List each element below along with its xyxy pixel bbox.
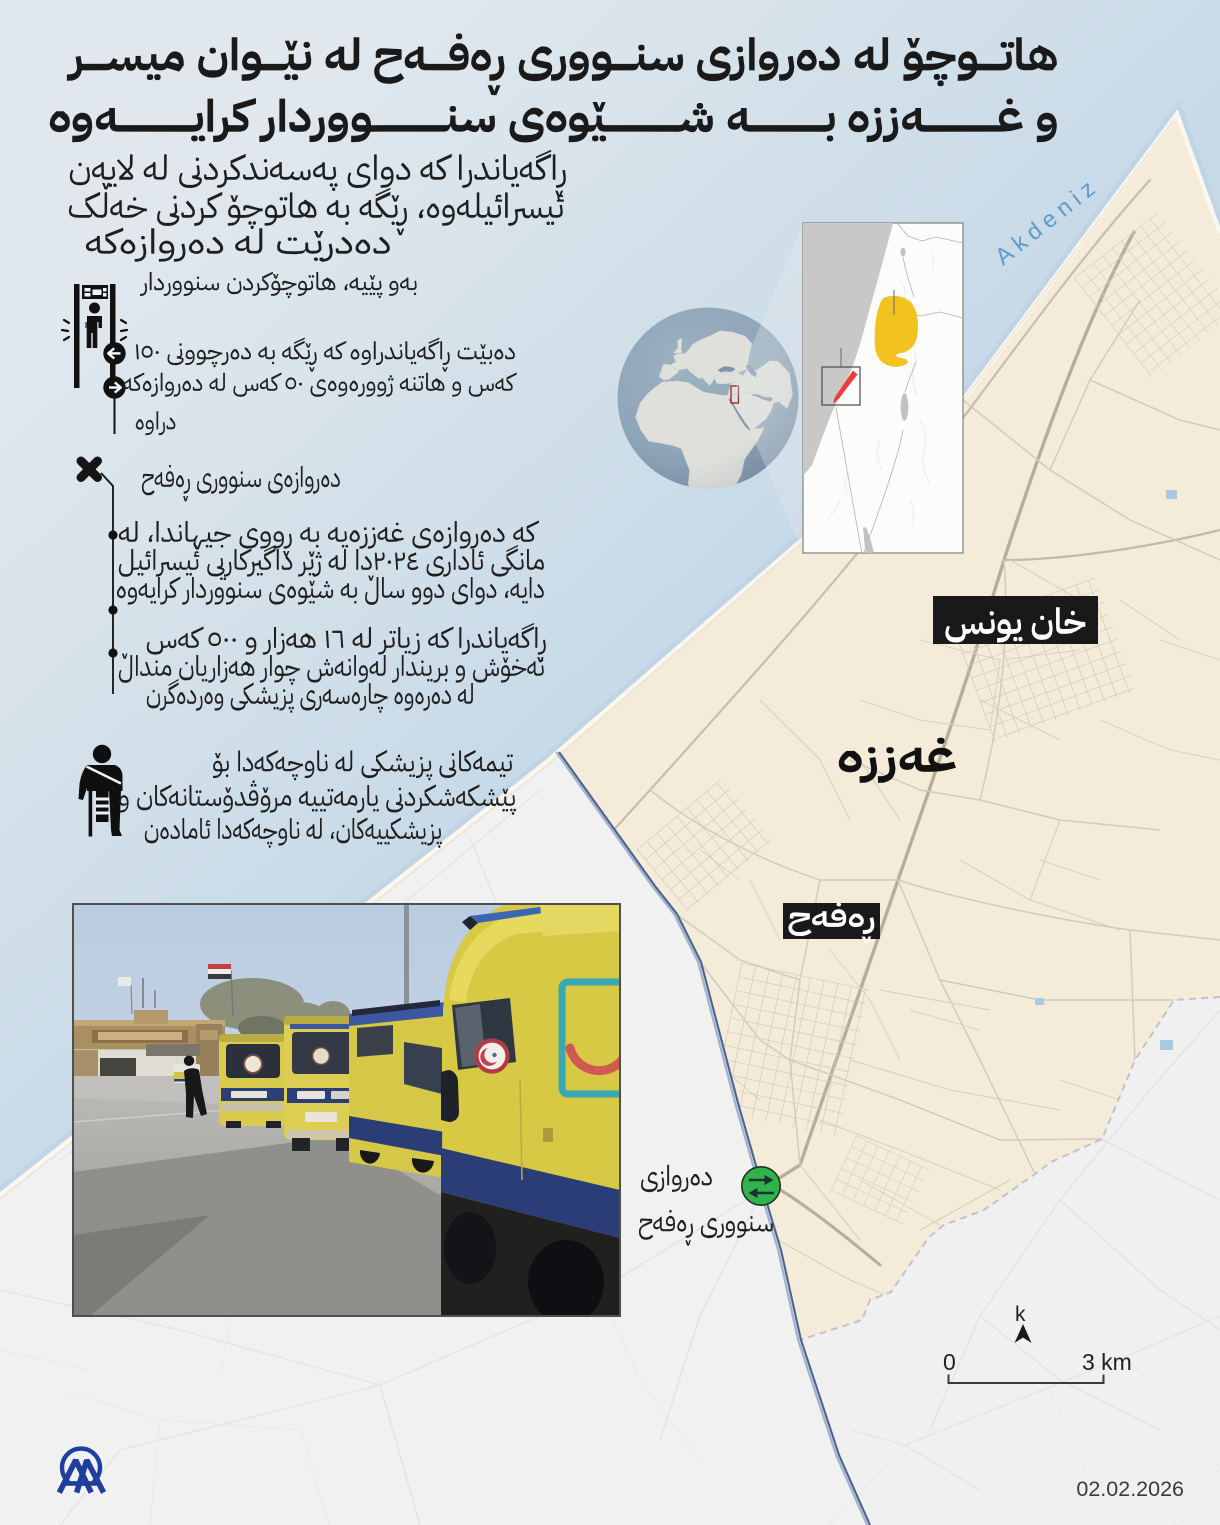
svg-text:k: k [1015, 1303, 1026, 1326]
svg-text:0: 0 [943, 1349, 956, 1375]
svg-text:02.02.2026: 02.02.2026 [1076, 1477, 1184, 1501]
svg-text:3 km: 3 km [1082, 1349, 1132, 1375]
